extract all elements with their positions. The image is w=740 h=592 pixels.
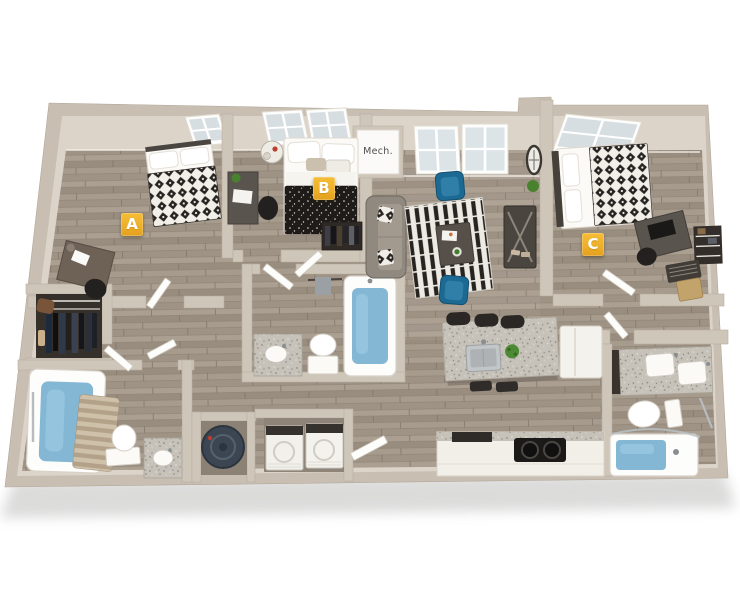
refrigerator [560, 326, 602, 378]
dining-chair [496, 381, 518, 392]
window-living-2 [462, 124, 508, 174]
toilet-tank [664, 399, 683, 428]
toilet-bowl [310, 334, 336, 356]
mech-closet-label: Mech. [354, 146, 402, 157]
bedroom-a-bed [144, 139, 221, 227]
floor-plan-render: A B C Mech. [0, 0, 740, 592]
laundry-closet [264, 418, 344, 472]
window-living-1 [414, 126, 461, 174]
living-plant [527, 180, 539, 192]
wall-clock [527, 146, 541, 174]
oven-hood [452, 432, 492, 442]
tv-console [504, 206, 536, 268]
badge-bedroom-a: A [121, 213, 143, 236]
toilet-bowl [112, 425, 136, 451]
bedroom-c-bed [551, 143, 652, 230]
bedroom-b-closet [322, 222, 362, 250]
armchair-blue-bottom [439, 275, 469, 305]
badge-bedroom-c: C [582, 233, 604, 256]
sink [265, 346, 287, 363]
coffee-table [436, 222, 475, 266]
bedroom-c-shelf [693, 226, 722, 265]
sink [645, 353, 675, 377]
kitchen-counter [437, 432, 604, 476]
armchair-blue-top [435, 171, 465, 201]
bar-stool [474, 313, 499, 327]
bar-stool [500, 315, 525, 329]
dining-chair [470, 380, 492, 391]
toilet-tank [308, 356, 338, 374]
desk-chair [258, 196, 278, 220]
bar-stool [446, 312, 471, 326]
sink [677, 361, 707, 385]
water-heater-closet [201, 421, 247, 475]
badge-bedroom-b: B [313, 177, 335, 200]
sink [153, 450, 173, 466]
bedroom-b-nightstand [261, 141, 283, 163]
floor-plan-canvas [0, 0, 740, 592]
walk-in-closet [36, 294, 102, 358]
sofa [366, 196, 406, 278]
